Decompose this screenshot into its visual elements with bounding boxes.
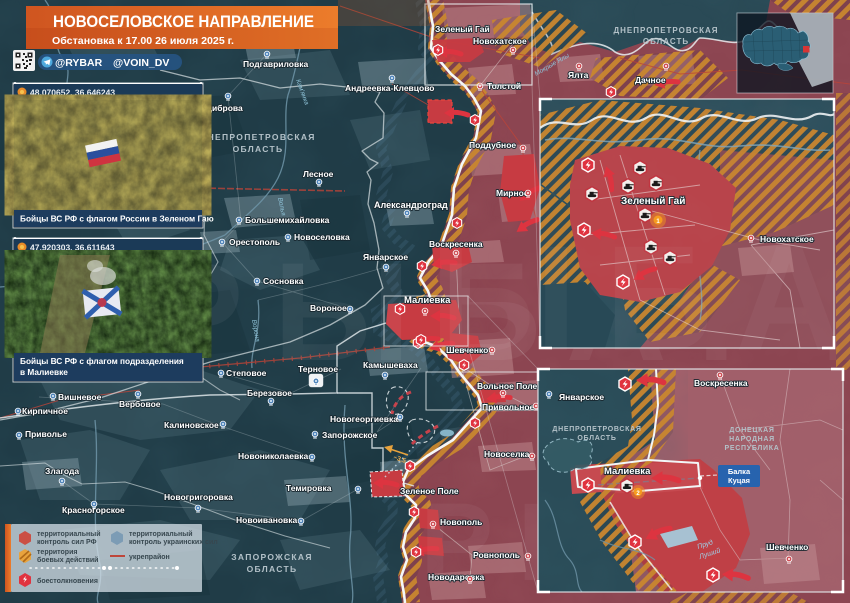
svg-text:укрепрайон: укрепрайон xyxy=(129,553,170,561)
svg-text:территория: территория xyxy=(37,549,77,556)
svg-text:Запорожское: Запорожское xyxy=(322,430,378,440)
svg-text:ЫБАР: ЫБАР xyxy=(430,214,850,382)
svg-text:Новодаровка: Новодаровка xyxy=(428,572,485,582)
svg-text:Бойцы ВС РФ с флагом России в: Бойцы ВС РФ с флагом России в Зеленом Га… xyxy=(20,214,214,224)
svg-text:Большемихайловка: Большемихайловка xyxy=(245,215,330,225)
svg-text:Злагода: Злагода xyxy=(45,466,79,476)
svg-text:Куцая: Куцая xyxy=(728,476,750,485)
svg-text:Темировка: Темировка xyxy=(286,483,332,493)
svg-text:@VOIN_DV: @VOIN_DV xyxy=(113,57,169,69)
svg-text:Подгавриловка: Подгавриловка xyxy=(243,59,308,69)
svg-text:Приволье: Приволье xyxy=(25,429,67,439)
svg-text:боевых действий: боевых действий xyxy=(37,556,98,564)
svg-text:ДНЕПРОПЕТРОВСКАЯ: ДНЕПРОПЕТРОВСКАЯ xyxy=(613,26,718,35)
svg-text:Вольное Поле: Вольное Поле xyxy=(477,381,538,391)
svg-text:Зеленый Гай: Зеленый Гай xyxy=(435,24,490,34)
svg-text:территориальный: территориальный xyxy=(129,530,193,538)
svg-text:в Малиевке: в Малиевке xyxy=(20,367,68,377)
svg-text:Новоселовка: Новоселовка xyxy=(294,232,350,242)
svg-text:Толстой: Толстой xyxy=(487,81,521,91)
svg-text:ДОНЕЦКАЯ: ДОНЕЦКАЯ xyxy=(729,427,774,434)
svg-text:Березовое: Березовое xyxy=(247,388,292,398)
svg-text:контроль сил РФ: контроль сил РФ xyxy=(37,539,97,546)
svg-text:48.070652, 36.646243: 48.070652, 36.646243 xyxy=(30,88,115,98)
svg-text:Ровнополь: Ровнополь xyxy=(473,550,520,560)
svg-text:Кирпичное: Кирпичное xyxy=(22,406,68,416)
svg-text:Лесное: Лесное xyxy=(303,169,334,179)
svg-text:Январское: Январское xyxy=(363,252,408,262)
svg-text:Балка: Балка xyxy=(728,467,751,476)
svg-text:Зеленое Поле: Зеленое Поле xyxy=(400,486,459,496)
svg-text:ДНЕПРОПЕТРОВСКАЯ: ДНЕПРОПЕТРОВСКАЯ xyxy=(200,132,315,142)
svg-text:Январское: Январское xyxy=(559,392,604,402)
svg-text:боестолкновения: боестолкновения xyxy=(37,577,98,585)
svg-text:РЕСПУБЛИКА: РЕСПУБЛИКА xyxy=(725,445,780,452)
svg-text:Мирное: Мирное xyxy=(496,188,529,198)
svg-text:Новохатское: Новохатское xyxy=(473,36,527,46)
svg-text:Бойцы ВС РФ с флагом подраздел: Бойцы ВС РФ с флагом подразделения xyxy=(20,356,184,366)
svg-text:Степовое: Степовое xyxy=(226,368,267,378)
svg-text:территориальный: территориальный xyxy=(37,530,101,538)
svg-text:Орестополь: Орестополь xyxy=(229,237,280,247)
svg-text:Калиновское: Калиновское xyxy=(164,420,219,430)
svg-text:Вишневое: Вишневое xyxy=(58,392,102,402)
svg-text:НАРОДНАЯ: НАРОДНАЯ xyxy=(729,436,775,443)
svg-text:Новогригоровка: Новогригоровка xyxy=(164,492,233,502)
svg-text:Александроград: Александроград xyxy=(374,200,448,210)
svg-text:Новониколаевка: Новониколаевка xyxy=(238,451,308,461)
svg-text:Камышеваха: Камышеваха xyxy=(363,360,418,370)
svg-text:НОВОСЕЛОВСКОЕ НАПРАВЛЕНИЕ: НОВОСЕЛОВСКОЕ НАПРАВЛЕНИЕ xyxy=(53,12,314,31)
svg-text:Терновое: Терновое xyxy=(298,364,338,374)
svg-text:Новоселка: Новоселка xyxy=(484,449,530,459)
svg-text:ОБЛАСТЬ: ОБЛАСТЬ xyxy=(233,144,284,154)
svg-text:ОБЛАСТЬ: ОБЛАСТЬ xyxy=(643,37,689,46)
svg-text:Новогеоргиевка: Новогеоргиевка xyxy=(330,414,398,424)
svg-text:Андреевка-Клевцово: Андреевка-Клевцово xyxy=(345,83,435,93)
svg-text:47.920303, 36.611643: 47.920303, 36.611643 xyxy=(30,243,115,253)
svg-text:Вербовое: Вербовое xyxy=(119,399,161,409)
svg-text:Обстановка к 17.00 26 июля 202: Обстановка к 17.00 26 июля 2025 г. xyxy=(52,35,234,47)
svg-text:Новополь: Новополь xyxy=(440,517,482,527)
svg-text:ОБЛАСТЬ: ОБЛАСТЬ xyxy=(247,564,298,574)
svg-text:контроль украинских сил: контроль украинских сил xyxy=(129,539,218,546)
svg-text:Зеленый Гай: Зеленый Гай xyxy=(621,196,685,207)
svg-text:ДНЕПРОПЕТРОВСКАЯ: ДНЕПРОПЕТРОВСКАЯ xyxy=(552,426,641,433)
svg-text:Поддубное: Поддубное xyxy=(469,140,516,150)
svg-text:ОБЛАСТЬ: ОБЛАСТЬ xyxy=(577,435,616,442)
svg-text:@RYBAR: @RYBAR xyxy=(55,57,103,69)
svg-text:Шевченко: Шевченко xyxy=(766,542,808,552)
svg-text:Сосновка: Сосновка xyxy=(263,276,304,286)
svg-text:Дачное: Дачное xyxy=(635,75,666,85)
svg-text:Ялта: Ялта xyxy=(568,70,589,80)
svg-text:Диброва: Диброва xyxy=(206,103,243,113)
svg-text:ЗАПОРОЖСКАЯ: ЗАПОРОЖСКАЯ xyxy=(231,552,312,562)
svg-text:Вороное: Вороное xyxy=(310,303,347,313)
svg-text:Малиевка: Малиевка xyxy=(604,466,651,477)
svg-text:Новоивановка: Новоивановка xyxy=(236,515,298,525)
